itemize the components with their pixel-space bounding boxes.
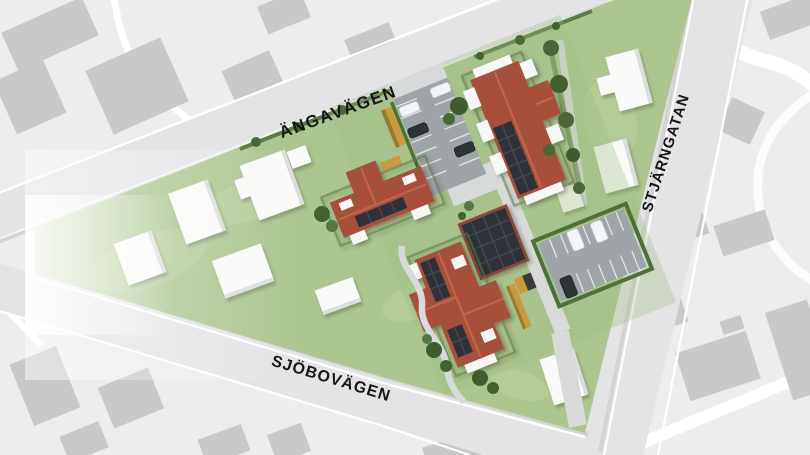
site-plan-svg: ÄNGAVÄGEN STJÄRNGATAN SJÖBOVÄGEN [0, 0, 810, 455]
tip-fade-overlay [25, 195, 175, 335]
site-plan-map: ÄNGAVÄGEN STJÄRNGATAN SJÖBOVÄGEN [0, 0, 810, 455]
